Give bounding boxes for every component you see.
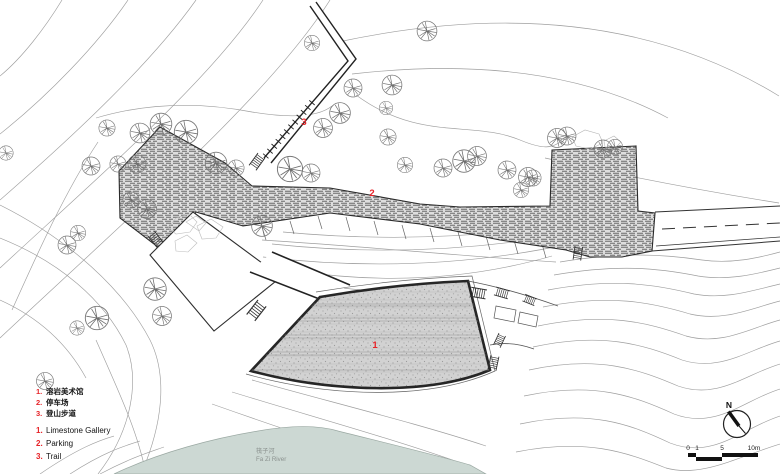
contour-lines <box>0 0 780 474</box>
scale-tick-10: 10m <box>748 445 761 452</box>
legend-english: 1. Limestone Gallery 2. Parking 3. Trail <box>36 426 110 465</box>
stairs-icon <box>249 153 265 170</box>
site-plan-canvas: 1 2 3 筏子河 Fa Zi River N 0 1 5 10m 1. 溶岩美… <box>0 0 780 474</box>
legend-label: Parking <box>46 439 73 448</box>
tree-icon <box>82 157 100 175</box>
legend-label: 停车场 <box>46 397 69 408</box>
legend-item-parking-en: 2. Parking <box>36 439 110 452</box>
tree-icon <box>468 147 487 166</box>
legend-item-trail-en: 3. Trail <box>36 452 110 465</box>
tree-icon <box>453 150 476 173</box>
tree-icon <box>70 321 84 335</box>
legend: 1. 溶岩美术馆 2. 停车场 3. 登山步道 1. Limestone Gal… <box>36 386 110 465</box>
site-plan-drawing: 1 2 3 筏子河 Fa Zi River N 0 1 5 10m <box>0 0 780 474</box>
stairs-icon <box>522 294 537 305</box>
tree-icon <box>382 75 402 95</box>
trail-path <box>263 2 356 163</box>
legend-label: Trail <box>46 452 61 461</box>
road-centerline <box>662 223 780 229</box>
legend-item-gallery-zh: 1. 溶岩美术馆 <box>36 386 110 397</box>
stairs-icon <box>494 333 506 348</box>
tree-icon <box>397 157 412 172</box>
legend-number: 2. <box>36 398 46 407</box>
tree-icon <box>314 119 333 138</box>
tree-icon <box>85 306 108 329</box>
river-name-zh: 筏子河 <box>256 447 275 455</box>
tree-icon <box>380 129 396 145</box>
access-road <box>652 206 780 251</box>
legend-label: 溶岩美术馆 <box>46 386 84 397</box>
gallery-building <box>251 281 490 388</box>
label-parking-number: 2 <box>369 188 374 199</box>
tree-icon <box>277 156 302 181</box>
legend-chinese: 1. 溶岩美术馆 2. 停车场 3. 登山步道 <box>36 386 110 419</box>
label-trail-number: 3 <box>301 117 306 128</box>
stairs-icon <box>494 287 510 299</box>
tree-icon <box>498 161 516 179</box>
stairs-icon <box>247 300 266 321</box>
tree-icon <box>144 278 167 301</box>
scale-tick-5: 5 <box>720 445 724 452</box>
scale-tick-0: 0 <box>686 445 690 452</box>
tree-icon <box>417 21 437 41</box>
river-name-en: Fa Zi River <box>256 456 286 463</box>
tree-icon <box>344 79 362 97</box>
legend-item-parking-zh: 2. 停车场 <box>36 397 110 408</box>
tree-icon <box>513 182 528 197</box>
legend-number: 3. <box>36 452 46 461</box>
tree-icon <box>130 123 150 143</box>
scale-bar: 0 1 5 10m <box>686 445 760 461</box>
tree-icon <box>153 307 172 326</box>
tree-icon <box>330 103 351 124</box>
legend-number: 2. <box>36 439 46 448</box>
north-arrow: N <box>724 400 751 438</box>
river-area <box>114 427 486 474</box>
tree-icon <box>0 146 13 160</box>
legend-number: 1. <box>36 426 46 435</box>
tree-icon <box>434 159 452 177</box>
legend-label: Limestone Gallery <box>46 426 110 435</box>
legend-item-trail-zh: 3. 登山步道 <box>36 408 110 419</box>
legend-number: 3. <box>36 409 46 418</box>
legend-item-gallery-en: 1. Limestone Gallery <box>36 426 110 439</box>
tree-icon <box>304 35 319 50</box>
tree-icon <box>302 164 320 182</box>
scale-tick-1: 1 <box>695 445 699 452</box>
tree-icon <box>70 225 85 240</box>
north-label: N <box>726 400 732 410</box>
label-gallery-number: 1 <box>372 340 378 351</box>
legend-number: 1. <box>36 387 46 396</box>
tree-icon <box>174 120 197 143</box>
tree-icon <box>99 120 115 136</box>
legend-label: 登山步道 <box>46 408 76 419</box>
